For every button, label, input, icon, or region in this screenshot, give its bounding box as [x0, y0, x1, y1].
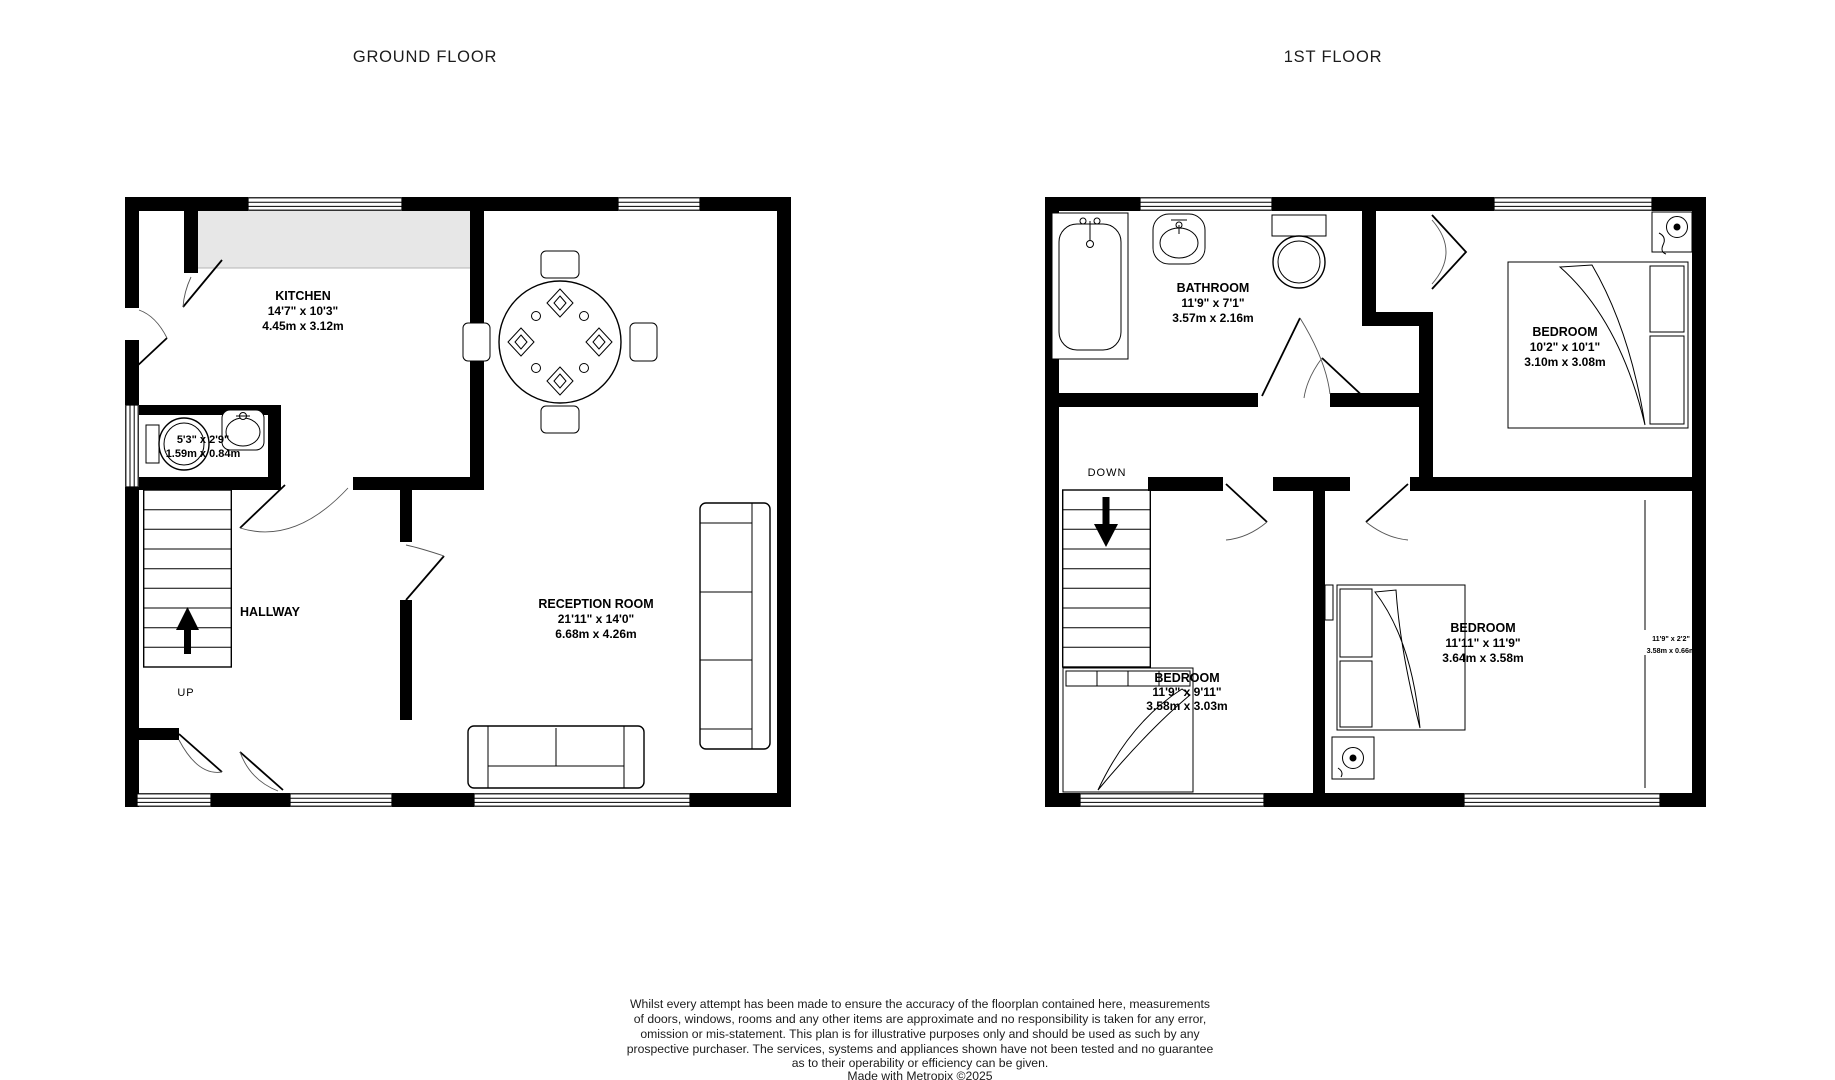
disclaimer-line: of doors, windows, rooms and any other i…: [634, 1012, 1206, 1026]
bathtub-icon: [1052, 213, 1128, 359]
appliance-icon: [1332, 737, 1374, 779]
staircase-down: [1063, 490, 1151, 667]
floor-title-first: 1ST FLOOR: [1284, 48, 1383, 66]
bathroom-label: BATHROOM: [1177, 281, 1250, 295]
kitchen-counter: [198, 211, 470, 268]
first-floor-plan: BATHROOM 11'9" x 7'1" 3.57m x 2.16m BEDR…: [1045, 197, 1706, 807]
bay-dims-imperial: 11'9" x 2'2": [1652, 634, 1690, 643]
bedroom-top-dims-metric: 3.10m x 3.08m: [1524, 355, 1605, 369]
hall-door-right: [240, 752, 283, 791]
bedroom-left-door: [1226, 484, 1267, 540]
down-label: DOWN: [1088, 467, 1127, 479]
window: [1080, 794, 1264, 806]
disclaimer-line: as to their operability or efficiency ca…: [792, 1056, 1049, 1070]
bathroom-dims-imperial: 11'9" x 7'1": [1181, 296, 1244, 310]
dining-table-icon: [463, 251, 657, 433]
floorplan-page: GROUND FLOOR 1ST FLOOR: [0, 0, 1835, 1080]
ground-floor-walls: [125, 197, 791, 807]
bedroom-left-dims-metric: 3.58m x 3.03m: [1146, 699, 1227, 713]
ground-floor-plan: KITCHEN 14'7" x 10'3" 4.45m x 3.12m 5'3"…: [125, 197, 791, 807]
bedroom-main-dims-imperial: 11'11" x 11'9": [1445, 636, 1520, 650]
staircase-up: [144, 490, 232, 667]
window: [474, 794, 690, 806]
window: [137, 794, 211, 806]
entry-door: [135, 310, 167, 368]
sofa-icon: [468, 726, 644, 788]
bathroom-door: [1262, 318, 1330, 396]
bay-dims-metric: 3.58m x 0.66m: [1647, 646, 1696, 655]
disclaimer-line: Whilst every attempt has been made to en…: [630, 997, 1210, 1011]
bedroom-left-dims-imperial: 11'9" x 9'11": [1152, 685, 1221, 699]
disclaimer-line: omission or mis-statement. This plan is …: [640, 1027, 1200, 1041]
bedroom-left-label: BEDROOM: [1154, 671, 1219, 685]
bifold-door: [1432, 215, 1466, 289]
bedroom-main-door: [1366, 484, 1408, 540]
up-label: UP: [177, 687, 194, 699]
bathroom-dims-metric: 3.57m x 2.16m: [1172, 311, 1253, 325]
appliance-icon: [1652, 212, 1692, 254]
kitchen-dims-imperial: 14'7" x 10'3": [268, 304, 338, 318]
disclaimer: Whilst every attempt has been made to en…: [627, 997, 1214, 1080]
hallway-label: HALLWAY: [240, 605, 301, 619]
reception-dims-metric: 6.68m x 4.26m: [555, 627, 636, 641]
wc-dims-imperial: 5'3" x 2'9": [177, 434, 229, 446]
kitchen-label: KITCHEN: [275, 289, 331, 303]
bedroom-top-dims-imperial: 10'2" x 10'1": [1530, 340, 1600, 354]
window: [1494, 198, 1652, 210]
bedroom-main-label: BEDROOM: [1450, 621, 1515, 635]
armchair-sofa-icon: [700, 503, 770, 749]
window: [1140, 198, 1272, 210]
floorplan-canvas: GROUND FLOOR 1ST FLOOR: [0, 0, 1835, 1080]
disclaimer-credit: Made with Metropix ©2025: [847, 1069, 992, 1080]
bathroom-sink-icon: [1153, 214, 1205, 264]
window: [248, 198, 402, 210]
disclaimer-line: prospective purchaser. The services, sys…: [627, 1042, 1214, 1056]
reception-dims-imperial: 21'11" x 14'0": [558, 612, 634, 626]
hall-door-left: [179, 734, 222, 772]
bedroom-main-dims-metric: 3.64m x 3.58m: [1442, 651, 1523, 665]
window: [126, 405, 138, 487]
kitchen-dims-metric: 4.45m x 3.12m: [262, 319, 343, 333]
kitchen-exit-door: [240, 485, 348, 532]
window: [290, 794, 392, 806]
toilet-icon: [1272, 215, 1326, 288]
reception-label: RECEPTION ROOM: [538, 597, 653, 611]
window: [618, 198, 700, 210]
down-arrow-icon: [1094, 497, 1118, 547]
bedroom-top-label: BEDROOM: [1532, 325, 1597, 339]
window: [1464, 794, 1660, 806]
reception-door: [406, 545, 444, 600]
wc-dims-metric: 1.59m x 0.84m: [166, 448, 241, 460]
floor-title-ground: GROUND FLOOR: [353, 48, 497, 66]
